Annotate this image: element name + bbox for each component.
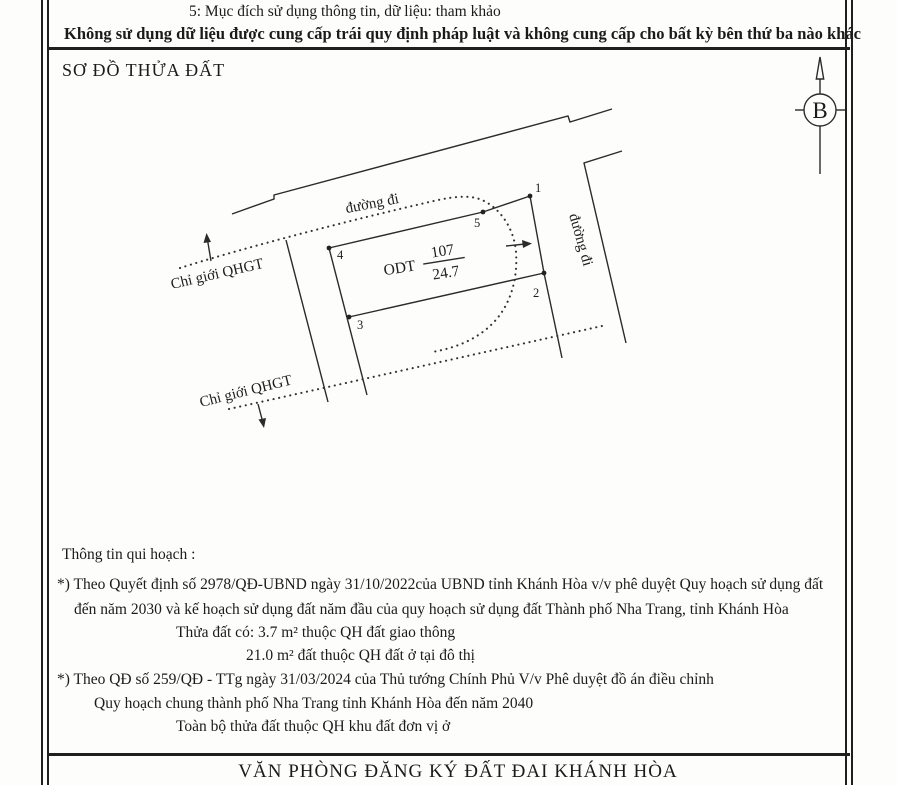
planning-line-2: đến năm 2030 và kế hoạch sử dụng đất năm… xyxy=(74,601,789,619)
north-arrow: B xyxy=(795,57,845,174)
point-2-dot xyxy=(542,271,547,276)
land-certificate-document: 5: Mục đích sử dụng thông tin, dữ liệu: … xyxy=(0,0,897,785)
point-5-label: 5 xyxy=(474,216,480,230)
point-1-dot xyxy=(528,194,533,199)
parcel-number-label: 107 xyxy=(430,241,456,261)
footer-office-title: VĂN PHÒNG ĐĂNG KÝ ĐẤT ĐAI KHÁNH HÒA xyxy=(48,761,850,783)
qhgt-label-upper: Chỉ giới QHGT xyxy=(169,256,265,293)
parcel-area-label: 24.7 xyxy=(431,263,461,284)
top-road-edge-line xyxy=(232,109,612,214)
point-3-dot xyxy=(347,315,352,320)
point-1-label: 1 xyxy=(535,181,541,195)
point-2-label: 2 xyxy=(533,286,539,300)
north-arrow-head xyxy=(816,57,823,79)
planning-line-6: Quy hoạch chung thành phố Nha Trang tỉnh… xyxy=(94,695,533,713)
qhgt-boundary-lower-dotted xyxy=(229,326,602,409)
planning-title: Thông tin qui hoạch : xyxy=(62,546,195,564)
neighbor-boundary-line xyxy=(286,240,328,402)
planning-line-4: 21.0 m² đất thuộc QH đất ở tại đô thị xyxy=(246,647,475,665)
parcel-sketch: B 1 2 3 xyxy=(0,0,897,545)
parcel-direction-arrow xyxy=(506,240,532,248)
point-4-label: 4 xyxy=(337,248,344,262)
footer-divider-line xyxy=(48,753,850,756)
planning-line-3: Thửa đất có: 3.7 m² thuộc QH đất giao th… xyxy=(176,624,455,642)
qhgt-upper-arrow xyxy=(204,233,212,261)
road-label-right: đường đi xyxy=(565,212,595,268)
parcel-east-boundary xyxy=(530,196,562,358)
point-3-label: 3 xyxy=(357,318,363,332)
planning-line-1: *) Theo Quyết định số 2978/QĐ-UBND ngày … xyxy=(57,576,823,594)
point-5-dot xyxy=(481,210,486,215)
parcel-label: ODT 107 24.7 xyxy=(381,240,468,291)
road-label-top: đường đi xyxy=(344,191,400,217)
qhgt-lower-arrow xyxy=(258,404,266,428)
planning-line-7: Toàn bộ thửa đất thuộc QH khu đất đơn vị… xyxy=(176,718,450,736)
point-4-dot xyxy=(327,246,332,251)
north-symbol: B xyxy=(812,98,827,123)
land-use-code-label: ODT xyxy=(382,257,417,279)
planning-line-5: *) Theo QĐ số 259/QĐ - TTg ngày 31/03/20… xyxy=(57,671,714,689)
